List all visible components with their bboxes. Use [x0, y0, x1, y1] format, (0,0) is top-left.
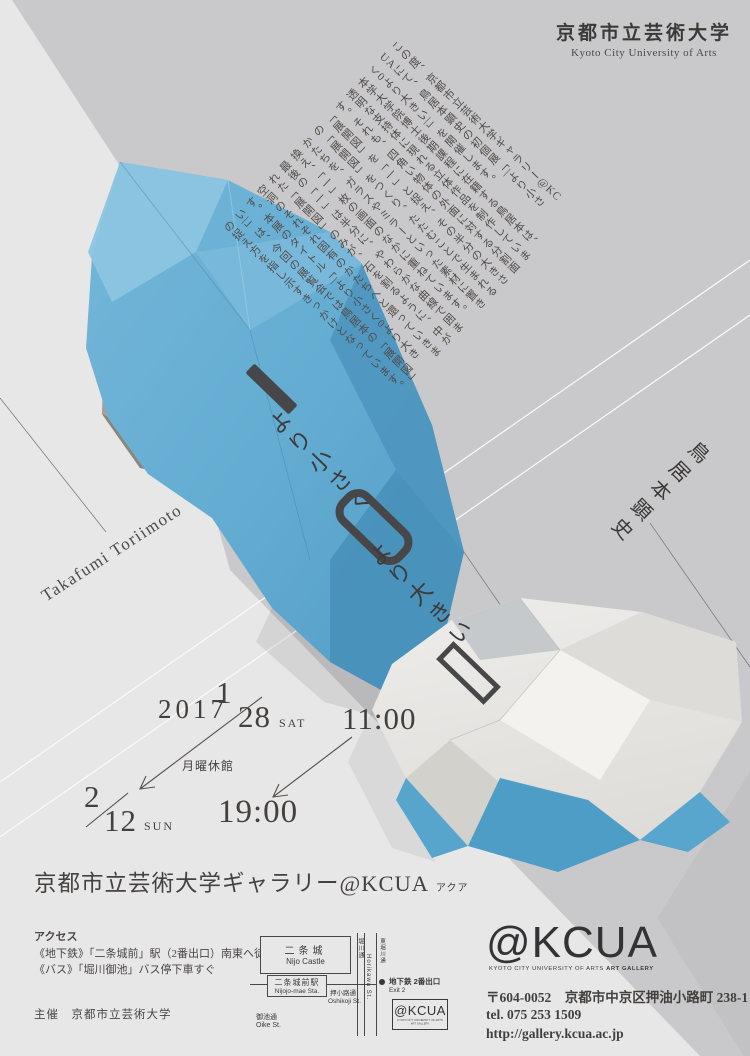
- end-weekday: SUN: [144, 819, 174, 834]
- kcua-logo-sub1: KYOTO CITY UNIVERSITY OF ARTS: [489, 966, 606, 972]
- map-castle-ja: 二条城: [261, 942, 350, 957]
- map-oike-ja: 御池通: [256, 1014, 277, 1021]
- closed-note: 月曜休館: [182, 757, 234, 774]
- start-day: 28: [238, 699, 271, 735]
- map-higashihorikawa-ja: 東堀川通: [378, 938, 386, 964]
- map-kcua-gallery: @KCUA KYOTO CITY UNIVERSITY OF ARTS ART …: [392, 999, 448, 1030]
- access-map: 二条城 Nijo Castle 二条城前駅 Nijojo-mae Sta. 堀川…: [250, 930, 455, 1040]
- venue-ruby: アクア: [436, 883, 469, 894]
- gallery-tel: tel. 075 253 1509: [486, 1007, 581, 1023]
- end-day: 12: [104, 803, 137, 839]
- university-logo: 京都市立芸術大学 Kyoto City University of Arts: [556, 18, 732, 59]
- organizer: 主催 京都市立芸術大学: [34, 1006, 172, 1022]
- map-station-ja: 二条城前駅: [268, 977, 326, 988]
- university-logo-en: Kyoto City University of Arts: [556, 47, 732, 59]
- map-subway-dot: [379, 979, 385, 985]
- kcua-logo: @KCUA: [486, 918, 658, 968]
- gallery-url: http://gallery.kcua.ac.jp: [486, 1026, 624, 1042]
- map-horikawa-ja: 堀川通: [356, 938, 365, 959]
- map-castle-en: Nijo Castle: [261, 957, 350, 966]
- venue-name: 京都市立芸術大学ギャラリー@KCUAアクア: [34, 866, 468, 898]
- close-time: 19:00: [218, 794, 298, 831]
- map-nijo-castle: 二条城 Nijo Castle: [260, 936, 351, 974]
- open-time: 11:00: [342, 701, 416, 737]
- kcua-logo-sub2: ART GALLERY: [606, 966, 654, 972]
- map-road-higashihorikawa: [376, 933, 377, 1036]
- rule-left: [0, 398, 106, 532]
- map-exit-ja: 地下鉄 2番出口: [389, 978, 440, 985]
- map-exit-en: Exit 2: [389, 987, 405, 994]
- kcua-logo-subtitle: KYOTO CITY UNIVERSITY OF ARTS ART GALLER…: [489, 966, 654, 972]
- map-kcua-sub: KYOTO CITY UNIVERSITY OF ARTS ART GALLER…: [396, 1018, 445, 1025]
- map-oike-en: Oike St.: [256, 1022, 281, 1029]
- map-horikawa-en: Horikawa St.: [365, 954, 371, 1000]
- arrow-time: [273, 737, 352, 797]
- gallery-address: 〒604-0052 京都市中京区押油小路町 238-1: [486, 986, 748, 1006]
- start-weekday: SAT: [279, 716, 306, 731]
- venue-name-text: 京都市立芸術大学ギャラリー@KCUA: [34, 871, 429, 896]
- map-kcua-label: @KCUA: [393, 1003, 447, 1018]
- map-oshikoji-en: Oshikoji St.: [328, 998, 361, 1005]
- end-month: 2: [84, 779, 100, 815]
- exhibition-poster: 京都市立芸術大学 Kyoto City University of Arts こ…: [0, 0, 750, 1056]
- start-month: 1: [216, 675, 232, 711]
- university-logo-ja: 京都市立芸術大学: [556, 18, 732, 45]
- map-station-en: Nijojo-mae Sta.: [268, 988, 326, 995]
- white-paper: [372, 598, 742, 872]
- map-oshikoji-ja: 押小路通: [330, 990, 356, 997]
- map-nijojo-mae-station: 二条城前駅 Nijojo-mae Sta.: [267, 975, 327, 997]
